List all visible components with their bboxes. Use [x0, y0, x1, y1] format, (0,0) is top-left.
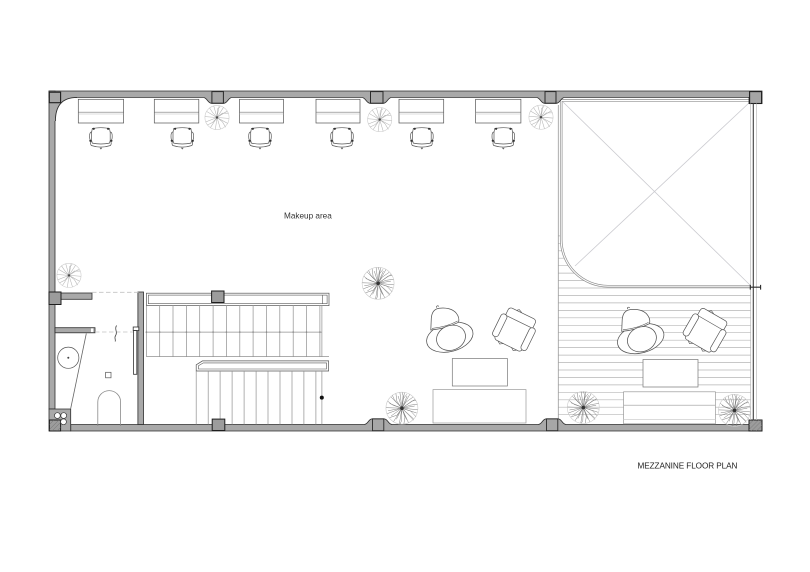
svg-text:MEZZANINE FLOOR PLAN: MEZZANINE FLOOR PLAN [638, 461, 738, 470]
svg-text:Makeup area: Makeup area [284, 211, 332, 220]
